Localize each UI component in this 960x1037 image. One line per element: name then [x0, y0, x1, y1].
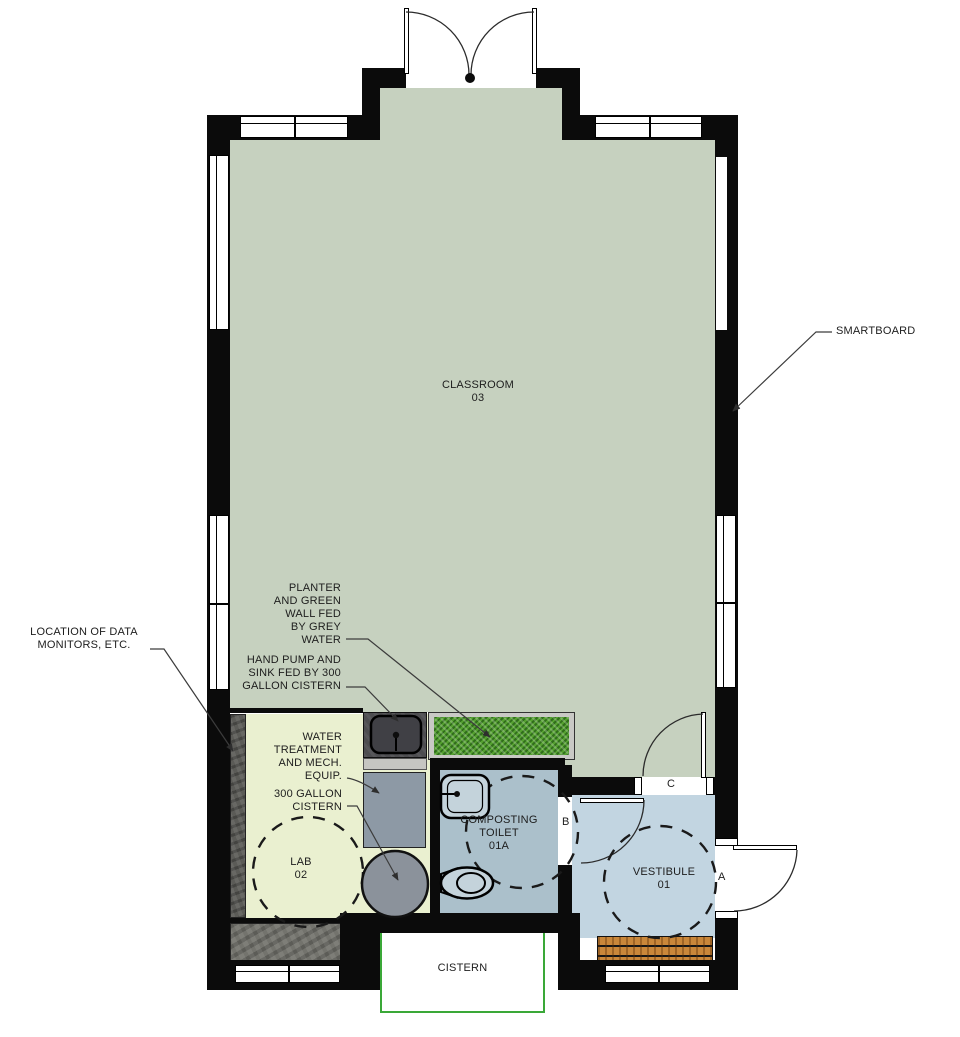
smartboard-surface [716, 157, 727, 330]
window-right-lower [716, 515, 736, 688]
water-treatment-line1: WATER [224, 731, 342, 744]
entry-door-opening [406, 68, 536, 88]
data-monitors-line2: MONITORS, ETC. [18, 639, 150, 652]
hand-pump-line3: GALLON CISTERN [204, 680, 341, 693]
window-top-left [240, 116, 348, 138]
room-label-vestibule: VESTIBULE 01 [604, 866, 724, 892]
label-planter: PLANTER AND GREEN WALL FED BY GREY WATER [204, 582, 341, 647]
door-c-jamb-right [706, 777, 714, 795]
window-mullion [649, 117, 651, 137]
room-label-toilet: COMPOSTING TOILET 01A [439, 814, 559, 853]
door-a-arc [734, 850, 797, 911]
lab-name: LAB [261, 856, 341, 869]
window-left-upper [209, 155, 229, 330]
vestibule-name: VESTIBULE [604, 866, 724, 879]
counter-edge-band [363, 758, 427, 770]
room-label-classroom: CLASSROOM 03 [408, 379, 548, 405]
door-a-jamb-bottom [715, 911, 738, 919]
classroom-floor-extension [565, 712, 715, 777]
wall-lab-classroom [230, 708, 363, 713]
wall-bottom-middle [340, 913, 580, 933]
window-mullion [294, 117, 296, 137]
door-a-leaf [733, 845, 797, 850]
classroom-floor-entry [380, 88, 562, 140]
toilet-number: 01A [439, 840, 559, 853]
planter-green-wall [434, 717, 569, 755]
hand-pump-line2: SINK FED BY 300 [204, 667, 341, 680]
planter-line4: BY GREY [204, 621, 341, 634]
gallon-cistern-line2: CISTERN [224, 801, 342, 814]
window-mullion [658, 966, 660, 982]
planter-line3: WALL FED [204, 608, 341, 621]
label-hand-pump: HAND PUMP AND SINK FED BY 300 GALLON CIS… [204, 654, 341, 693]
concrete-bench-strip [230, 923, 345, 961]
label-gallon-cistern: 300 GALLON CISTERN [224, 788, 342, 814]
water-treatment-line2: TREATMENT [224, 744, 342, 757]
classroom-name: CLASSROOM [408, 379, 548, 392]
label-smartboard: SMARTBOARD [836, 325, 915, 338]
window-mullion [717, 602, 735, 604]
label-data-monitors: LOCATION OF DATA MONITORS, ETC. [18, 626, 150, 652]
classroom-number: 03 [408, 392, 548, 405]
window-glass-line [236, 971, 339, 972]
data-monitors-line1: LOCATION OF DATA [18, 626, 150, 639]
floor-plan: CLASSROOM 03 LAB 02 COMPOSTING TOILET 01… [0, 0, 960, 1037]
door-c-leaf [701, 712, 706, 778]
window-glass-line [241, 123, 347, 124]
label-cistern: CISTERN [380, 962, 545, 975]
toilet-name-line1: COMPOSTING [439, 814, 559, 827]
leader-smartboard [733, 332, 832, 411]
entry-door-leaf-right [532, 8, 537, 74]
window-bottom-left [235, 965, 340, 983]
planter-line5: WATER [204, 634, 341, 647]
door-tag-a: A [718, 871, 726, 884]
gallon-cistern-line1: 300 GALLON [224, 788, 342, 801]
planter-line1: PLANTER [204, 582, 341, 595]
wall-entry-right [562, 68, 580, 140]
window-glass-line [216, 156, 217, 329]
planter-line2: AND GREEN [204, 595, 341, 608]
entry-door-leaf-left [404, 8, 409, 74]
lab-number: 02 [261, 869, 341, 882]
hand-pump-sink-counter [363, 712, 427, 758]
wall-toilet-top [430, 758, 565, 770]
vestibule-number: 01 [604, 879, 724, 892]
water-treatment-line3: AND MECH. [224, 757, 342, 770]
room-label-lab: LAB 02 [261, 856, 341, 882]
water-treatment-unit [363, 772, 426, 848]
entry-door-arc-right [471, 12, 534, 75]
door-tag-b: B [562, 816, 570, 829]
wall-lab-bottom-thin [230, 918, 345, 923]
window-mullion [288, 966, 290, 982]
hand-pump-line1: HAND PUMP AND [204, 654, 341, 667]
window-top-right [595, 116, 702, 138]
entry-door-arc-left [406, 12, 469, 75]
door-c-jamb-left [634, 777, 642, 795]
label-water-treatment: WATER TREATMENT AND MECH. EQUIP. [224, 731, 342, 783]
door-tag-c: C [667, 778, 675, 791]
window-bottom-right [605, 965, 710, 983]
door-b-leaf [580, 798, 644, 803]
door-b-opening [558, 797, 572, 865]
water-treatment-line4: EQUIP. [224, 770, 342, 783]
window-glass-line [606, 971, 709, 972]
window-glass-line [596, 123, 701, 124]
toilet-name-line2: TOILET [439, 827, 559, 840]
